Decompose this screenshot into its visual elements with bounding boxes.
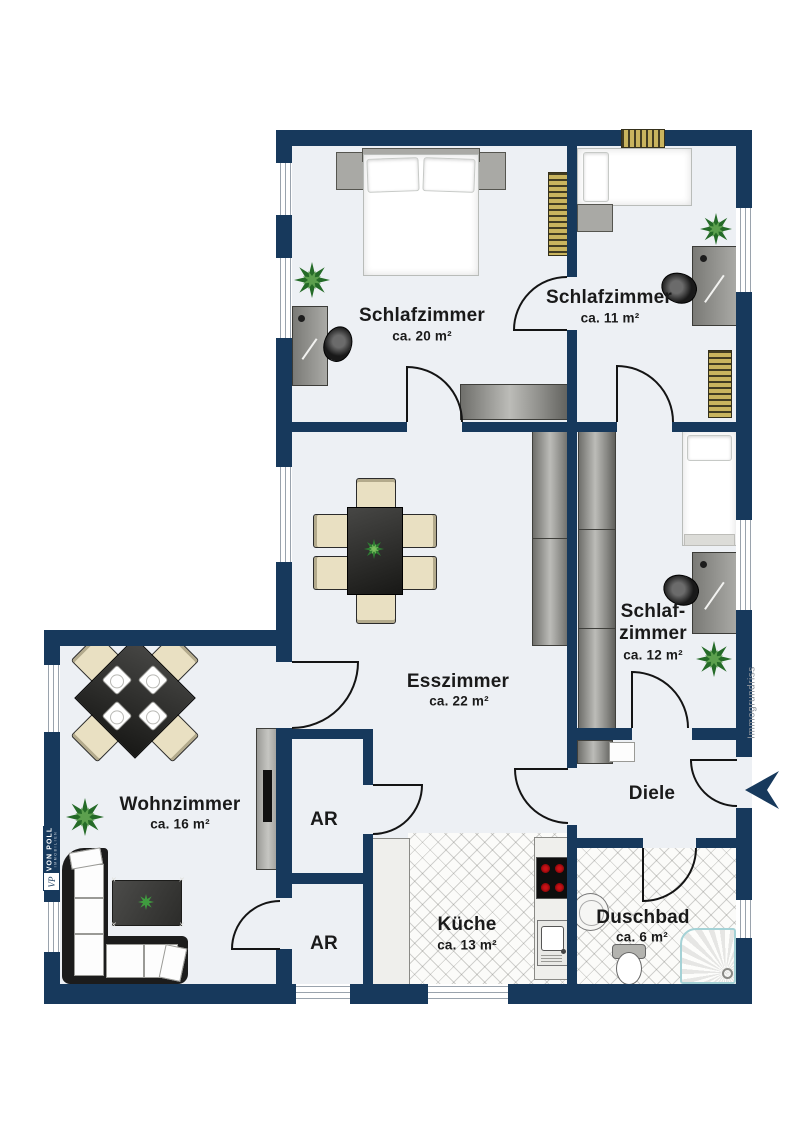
room-area-wohnzimmer: ca. 16 m²: [150, 817, 210, 832]
room-area-schlafzimmer-20: ca. 20 m²: [392, 329, 452, 344]
room-label-wohnzimmer: Wohnzimmer: [120, 794, 241, 816]
room-label-kueche: Küche: [437, 914, 496, 936]
door-schlafzimmer12-diele: [632, 672, 688, 728]
door-wohnzimmer-ar: [232, 901, 280, 949]
room-label-ar-1: AR: [310, 809, 338, 831]
room-area-duschbad: ca. 6 m²: [616, 930, 668, 945]
room-label-esszimmer: Esszimmer: [407, 671, 509, 693]
door-entrance: [691, 760, 737, 806]
room-label-diele: Diele: [629, 783, 675, 805]
floor-plan: ✕✕ ✕✕: [0, 0, 800, 1132]
door-schlafzimmer20: [407, 367, 462, 422]
room-label-schlafzimmer-20: Schlafzimmer: [359, 305, 485, 327]
door-schlafzimmer11-12: [617, 366, 673, 422]
room-area-schlafzimmer-11: ca. 11 m²: [581, 311, 640, 326]
door-ar: [373, 785, 422, 834]
room-label-duschbad: Duschbad: [596, 907, 689, 929]
door-esszimmer-diele: [515, 769, 568, 823]
room-label-schlafzimmer-12b: zimmer: [619, 623, 687, 645]
door-esszimmer-wohnzimmer: [292, 662, 358, 728]
room-area-esszimmer: ca. 22 m²: [429, 694, 489, 709]
door-duschbad: [643, 848, 696, 901]
door-swing-overlay: [0, 0, 800, 1132]
room-area-schlafzimmer-12: ca. 12 m²: [623, 648, 683, 663]
entrance-arrow-icon: [745, 771, 779, 809]
room-label-schlafzimmer-12a: Schlaf-: [621, 601, 686, 623]
room-label-ar-2: AR: [310, 933, 338, 955]
room-label-schlafzimmer-11: Schlafzimmer: [546, 287, 672, 309]
room-area-kueche: ca. 13 m²: [437, 938, 497, 953]
